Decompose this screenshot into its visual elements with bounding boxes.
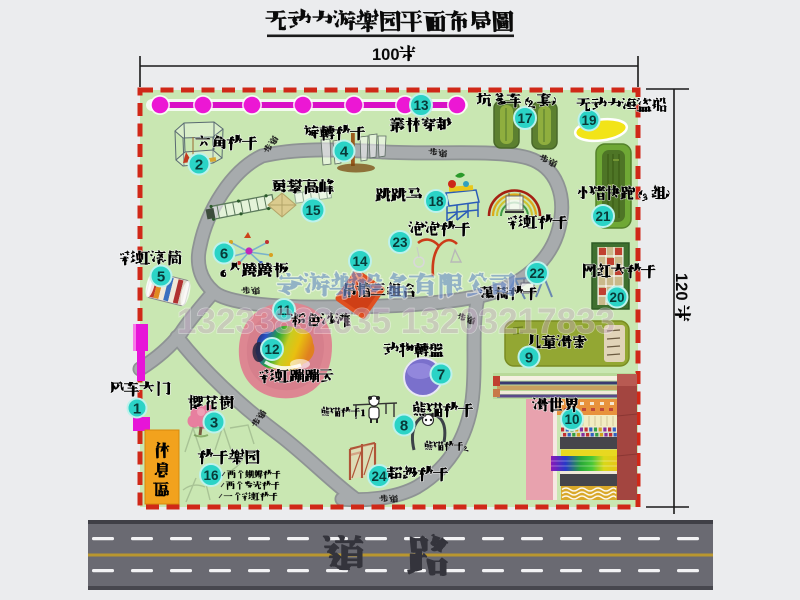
svg-text:13233832635 13203217833: 13233832635 13203217833 [177, 302, 615, 341]
svg-text:7: 7 [437, 366, 445, 383]
svg-text:24: 24 [371, 469, 387, 484]
svg-text:21: 21 [595, 209, 611, 224]
svg-text:10: 10 [564, 412, 579, 427]
svg-text:6: 6 [220, 245, 228, 262]
svg-text:9: 9 [525, 349, 533, 366]
svg-text:16: 16 [203, 468, 219, 483]
svg-text:100: 100 [372, 46, 400, 64]
svg-text:4: 4 [340, 143, 349, 160]
svg-text:1: 1 [133, 400, 141, 417]
svg-text:22: 22 [529, 266, 544, 281]
svg-text:15: 15 [305, 203, 321, 218]
svg-text:12: 12 [264, 342, 279, 357]
svg-text:8: 8 [400, 417, 408, 434]
svg-text:13: 13 [413, 98, 429, 113]
svg-text:14: 14 [352, 254, 368, 269]
svg-text:120: 120 [672, 273, 690, 301]
svg-text:3: 3 [210, 414, 218, 431]
svg-text:18: 18 [428, 194, 444, 209]
svg-text:17: 17 [517, 111, 532, 126]
svg-text:5: 5 [157, 268, 165, 285]
svg-text:23: 23 [392, 235, 408, 250]
svg-text:2: 2 [195, 156, 203, 173]
svg-text:19: 19 [581, 113, 596, 128]
